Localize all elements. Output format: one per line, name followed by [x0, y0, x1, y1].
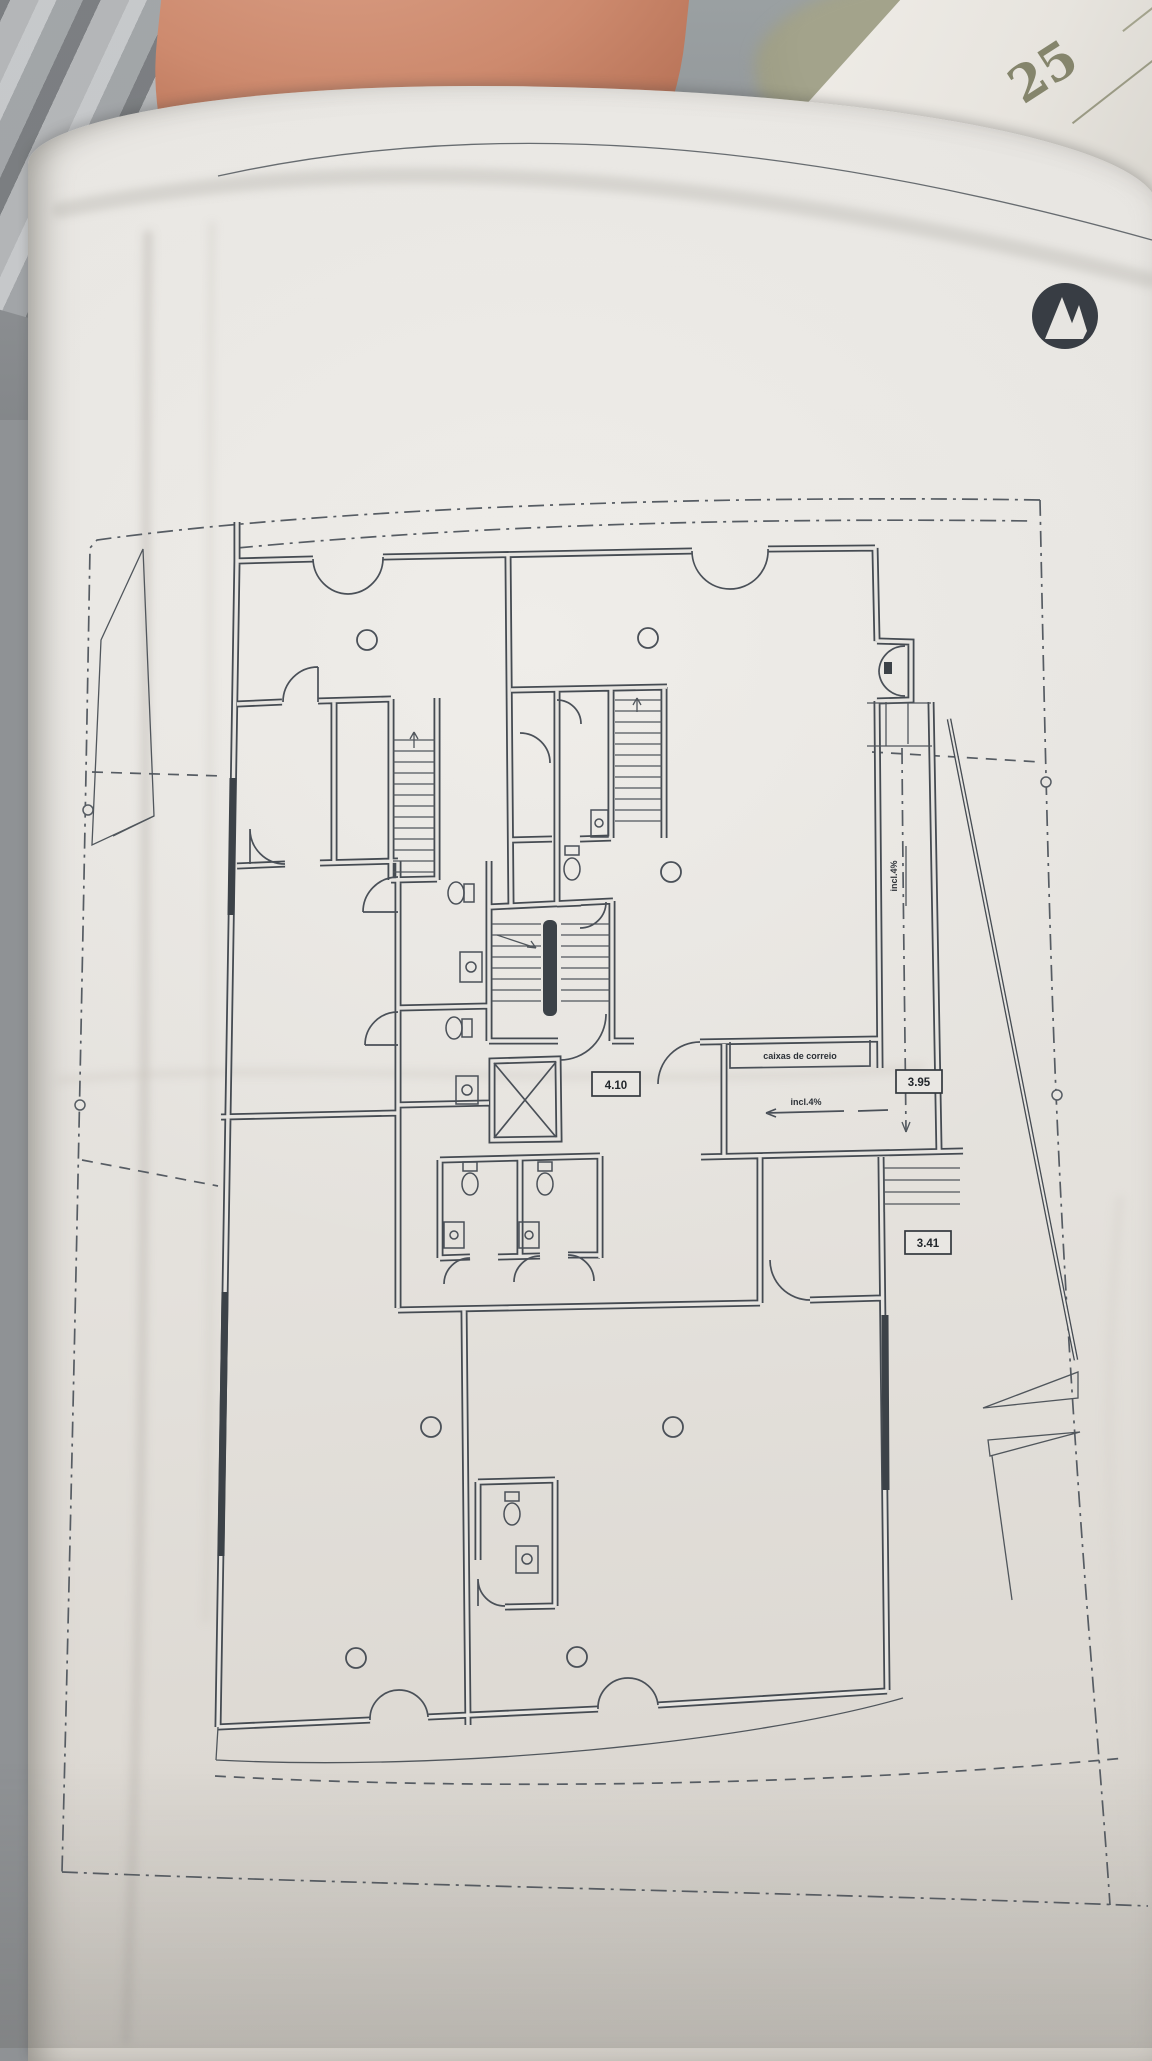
dimension-ramp-lower: 3.41 — [917, 1238, 940, 1250]
stair-central — [492, 920, 610, 1016]
dimension-hall: 4.10 — [605, 1080, 627, 1092]
slope-label-vertical: incl.4% — [889, 860, 899, 891]
stair-left — [393, 732, 435, 872]
architect-logo-icon — [1032, 283, 1098, 349]
dimension-boxes: 4.10 3.95 3.41 — [592, 1070, 951, 1254]
setback-lines — [82, 752, 1125, 1784]
photo-of-floorplan: { "photo": { "handwritten_note": "25" },… — [0, 0, 1152, 2048]
building-walls — [218, 522, 963, 1727]
floorplan-drawing: caixas de correio incl.4% incl.4% 4.10 3… — [0, 0, 1152, 2048]
dimension-ramp-upper: 3.95 — [908, 1077, 931, 1089]
door-swings — [250, 549, 905, 1720]
slope-label: incl.4% — [790, 1097, 821, 1107]
mailboxes-label: caixas de correio — [763, 1051, 837, 1061]
stair-right — [615, 698, 662, 821]
